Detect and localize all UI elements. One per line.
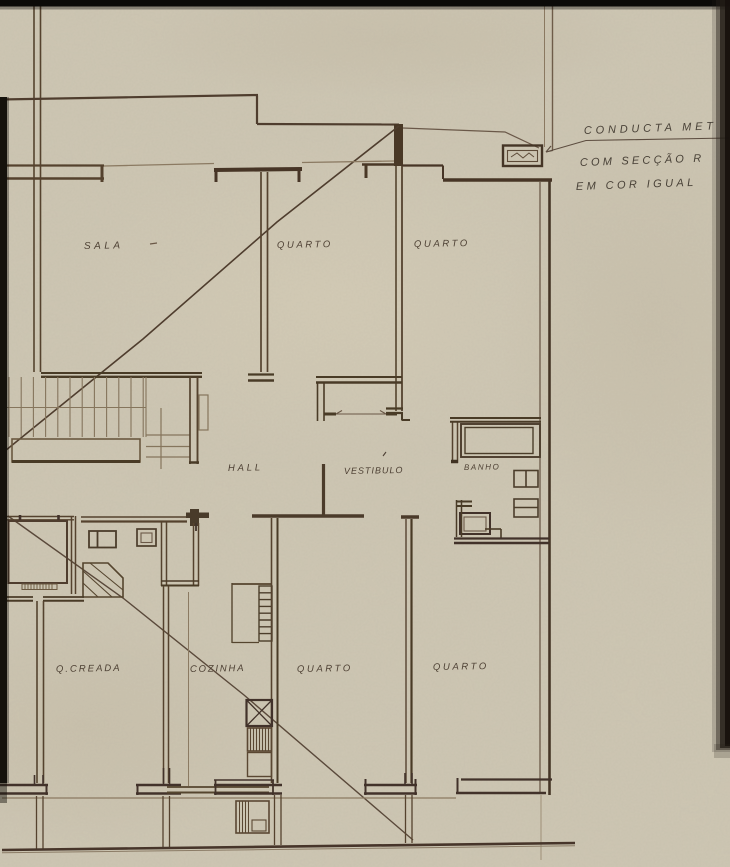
svg-text:QUARTO: QUARTO [433,661,489,673]
svg-text:QUARTO: QUARTO [414,238,470,250]
svg-text:VESTIBULO: VESTIBULO [344,465,404,476]
svg-text:QUARTO: QUARTO [277,239,333,251]
svg-text:HALL: HALL [228,462,263,474]
svg-text:COZINHA: COZINHA [190,663,246,675]
svg-text:QUARTO: QUARTO [297,663,353,675]
svg-text:SALA: SALA [84,240,124,252]
svg-text:BANHO: BANHO [464,462,501,472]
svg-text:Q.CREADA: Q.CREADA [56,663,122,675]
